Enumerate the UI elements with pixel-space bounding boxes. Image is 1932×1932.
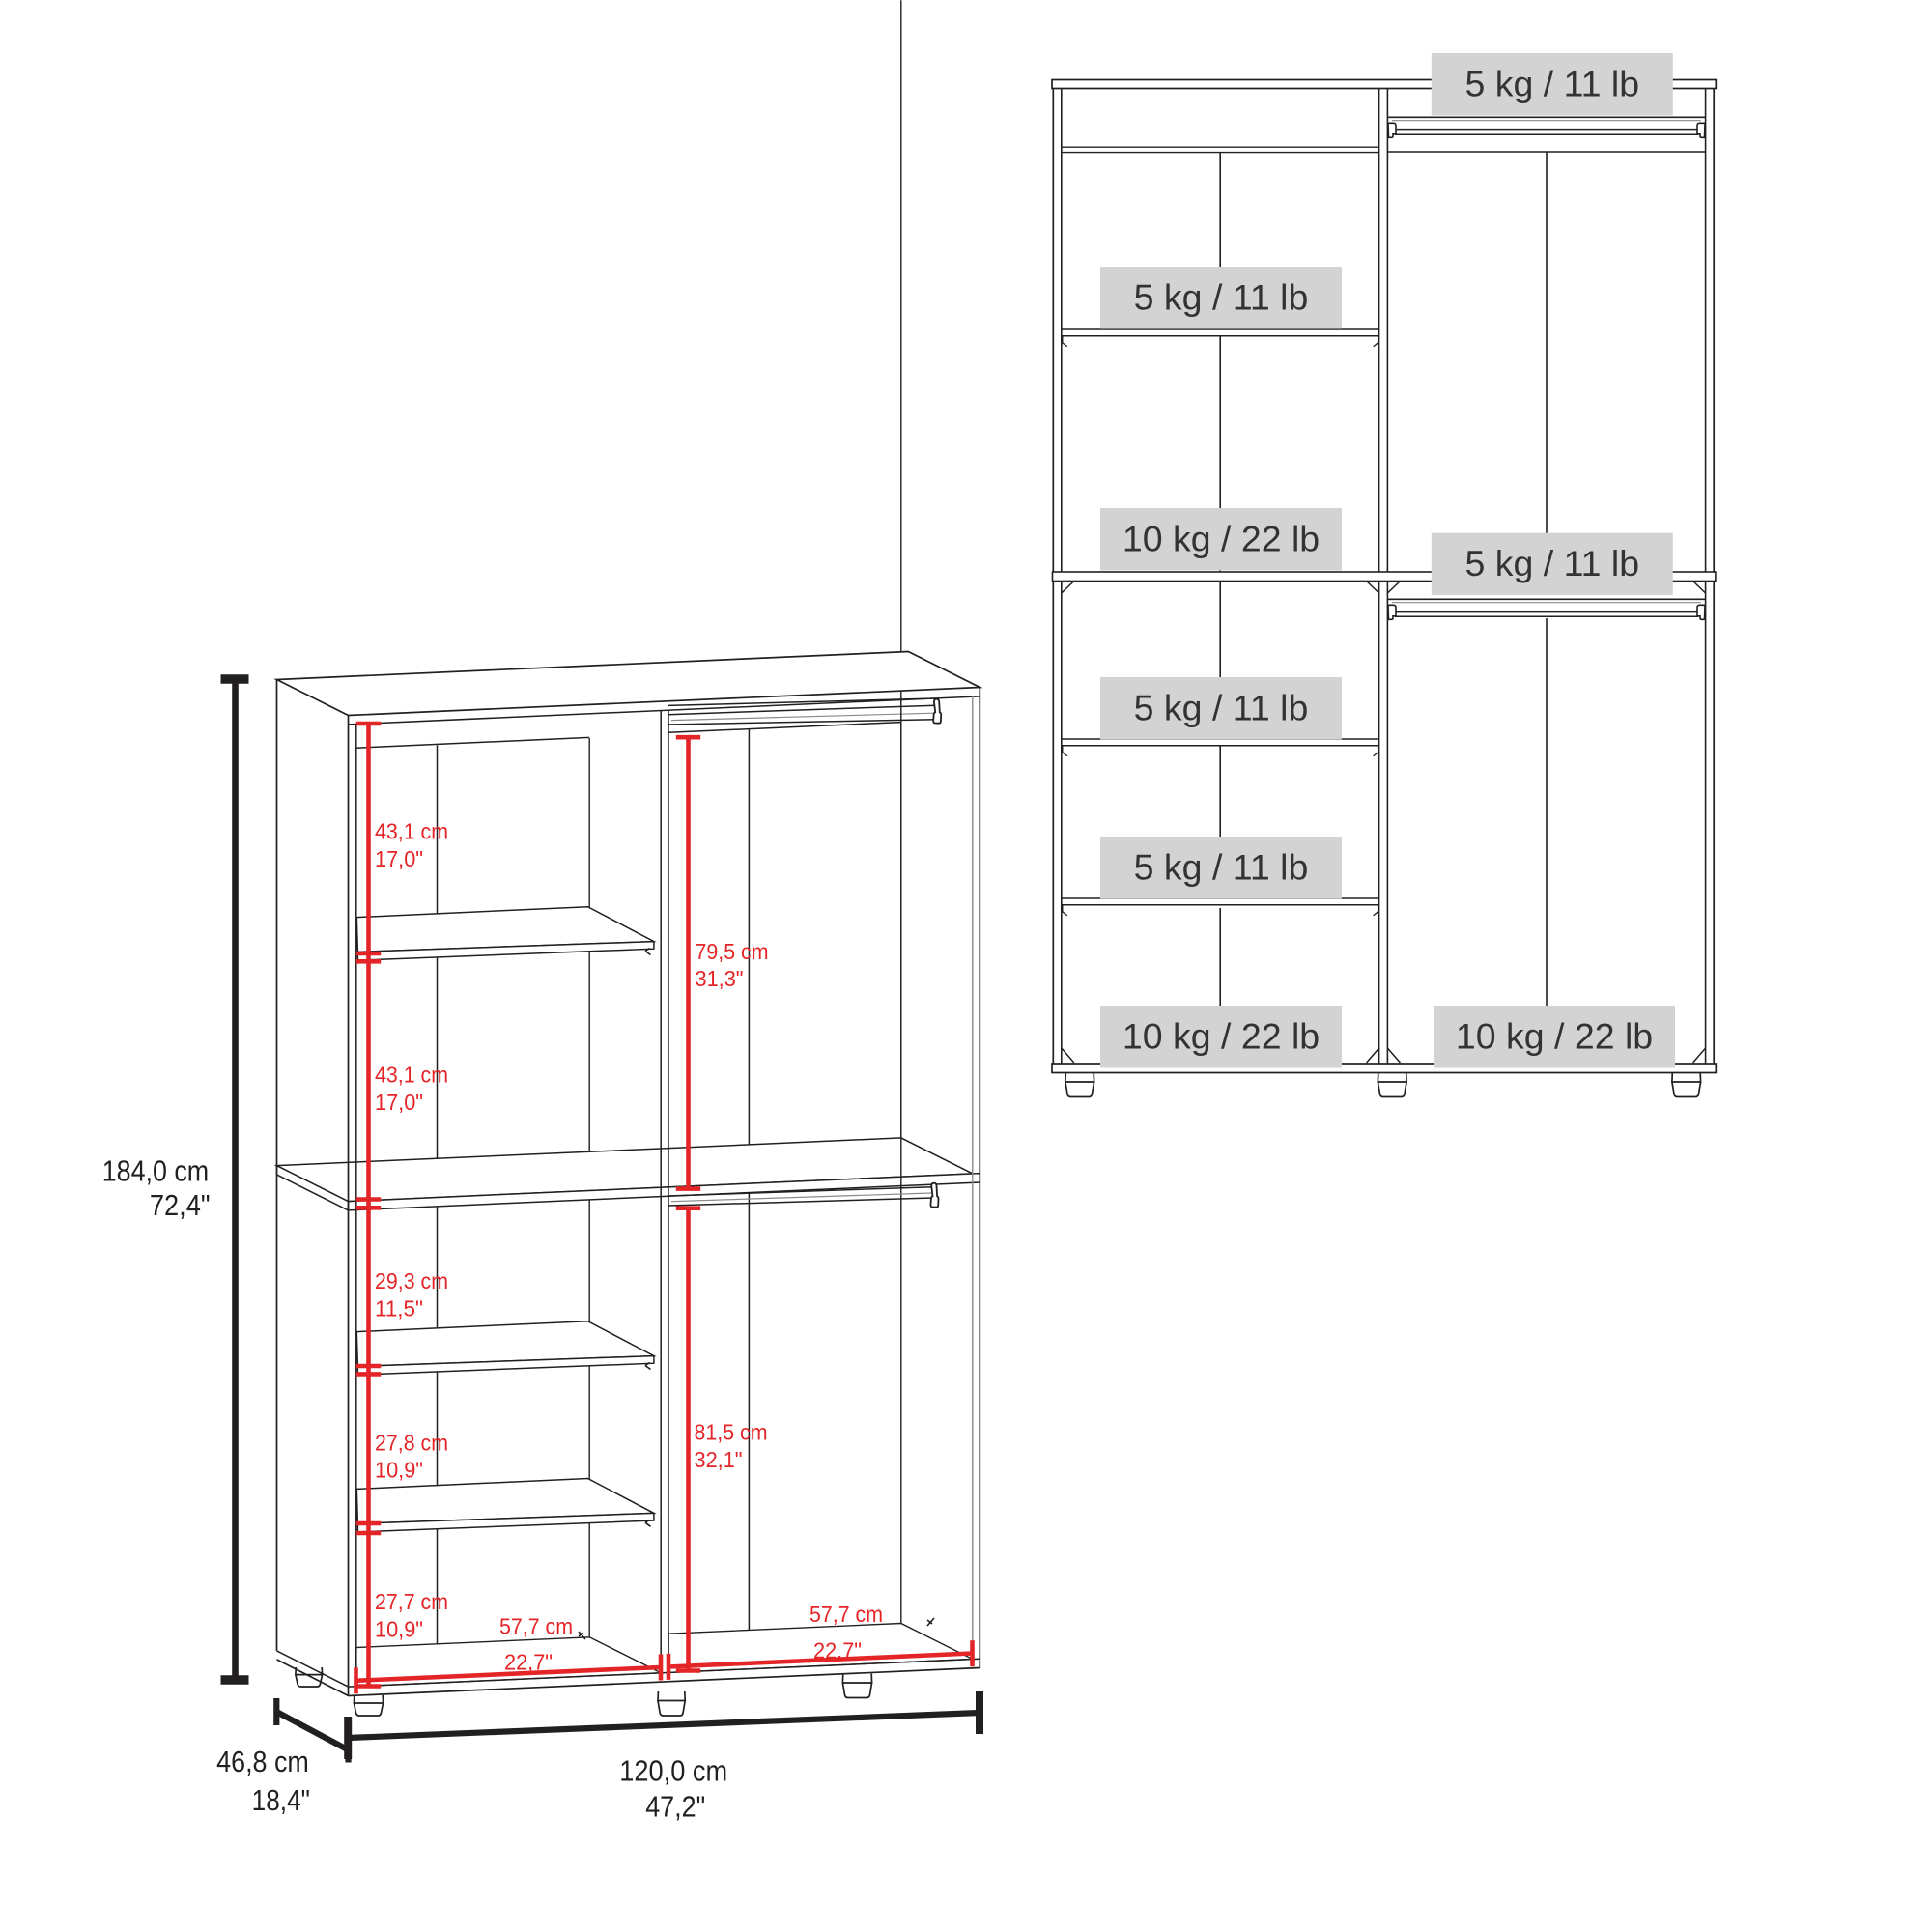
- svg-text:43,1 cm: 43,1 cm: [375, 1063, 448, 1088]
- svg-text:5 kg / 11 lb: 5 kg / 11 lb: [1134, 846, 1309, 887]
- svg-text:5 kg / 11 lb: 5 kg / 11 lb: [1134, 276, 1309, 317]
- svg-text:10 kg / 22 lb: 10 kg / 22 lb: [1456, 1015, 1653, 1056]
- svg-text:32,1": 32,1": [695, 1447, 743, 1472]
- svg-text:31,3": 31,3": [696, 966, 744, 991]
- svg-text:184,0 cm: 184,0 cm: [102, 1153, 210, 1187]
- svg-text:81,5 cm: 81,5 cm: [695, 1420, 768, 1445]
- svg-text:10,9": 10,9": [375, 1458, 423, 1483]
- svg-text:17,0": 17,0": [375, 1090, 423, 1115]
- svg-text:11,5": 11,5": [375, 1295, 423, 1321]
- svg-text:5 kg / 11 lb: 5 kg / 11 lb: [1464, 63, 1639, 103]
- svg-text:18,4": 18,4": [252, 1783, 310, 1817]
- svg-text:22,7": 22,7": [504, 1650, 553, 1675]
- svg-text:5 kg / 11 lb: 5 kg / 11 lb: [1464, 543, 1639, 583]
- svg-text:120,0 cm: 120,0 cm: [619, 1754, 727, 1788]
- svg-text:10,9": 10,9": [375, 1616, 423, 1641]
- svg-text:10 kg / 22 lb: 10 kg / 22 lb: [1122, 1015, 1320, 1056]
- svg-text:17,0": 17,0": [375, 846, 423, 871]
- svg-text:46,8 cm: 46,8 cm: [216, 1745, 309, 1778]
- svg-text:27,8 cm: 27,8 cm: [375, 1430, 448, 1455]
- svg-text:79,5 cm: 79,5 cm: [696, 939, 769, 964]
- svg-text:10 kg / 22 lb: 10 kg / 22 lb: [1122, 518, 1320, 558]
- svg-text:47,2": 47,2": [645, 1790, 705, 1824]
- svg-text:22,7": 22,7": [813, 1637, 862, 1662]
- svg-text:29,3 cm: 29,3 cm: [375, 1268, 448, 1293]
- svg-text:57,7 cm: 57,7 cm: [499, 1613, 573, 1638]
- svg-text:5 kg / 11 lb: 5 kg / 11 lb: [1134, 687, 1309, 727]
- svg-text:72,4": 72,4": [150, 1188, 211, 1222]
- svg-text:27,7 cm: 27,7 cm: [375, 1589, 448, 1614]
- svg-text:57,7 cm: 57,7 cm: [810, 1602, 883, 1627]
- svg-text:43,1 cm: 43,1 cm: [375, 819, 448, 844]
